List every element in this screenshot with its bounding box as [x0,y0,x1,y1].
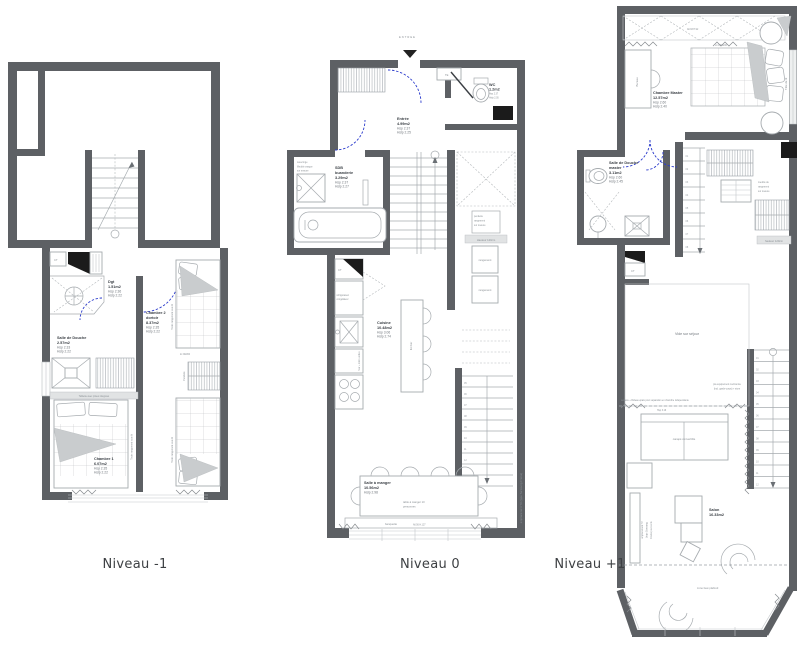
stair-step-number: 03 [756,380,759,383]
armchair-icon [669,604,687,620]
door-swing-arc [80,298,102,320]
room-hslp: Hslp 2.98 [364,491,378,495]
room-label: Chambre 1 [94,457,114,461]
room-area: 3.29m2 [335,176,348,180]
ct-label: CT [338,268,342,272]
coffee-table [675,496,702,523]
desk-chair-icon [651,70,660,88]
room-label2: dortoir [146,316,159,320]
room-area: 1.2m2 [489,88,500,92]
room-label: Salon [709,508,720,512]
ct-label: CT [631,269,635,273]
pillow-icon [765,49,784,67]
chair-icon [351,487,360,505]
door-swing-arc [645,152,663,170]
window-left-wall [42,362,50,396]
chair-icon [431,467,449,476]
stair-step-number: 08 [686,246,689,249]
floorplan-sheet: CT Dgt 1.51m2 Hsp 2.36 Hslp 2.22 Salle d… [0,0,800,647]
room-hslp: Hslp 2.22 [57,350,71,354]
stair-arrow-icon [129,162,135,168]
room-label: WC [489,83,496,87]
floorplan-niveau-plus1: All.93 H.92 Bureau Lit 160x200 Tête de l… [575,2,798,645]
towel-rack-icon [96,358,134,388]
door-swing-arc [388,70,421,103]
toilet-tank [474,78,488,84]
radiator-zigzag-icon [176,490,200,494]
island-label: Ilot bar [409,342,413,351]
radiator-zigzag-icon [625,42,657,46]
bed-size-note: 2x 90/200 [180,354,191,356]
chimney-block [781,142,797,158]
stair-step-number: 03 [686,181,689,184]
sofa-area: Hsp 3.16 canapé convertible [641,410,728,460]
technical-duct-icon [68,252,90,274]
bed-size-note: Lit 160x200 [715,44,728,47]
coffee-table [680,542,700,562]
room-hslp: Hslp 2.45 [609,180,623,184]
caption-niveau-plus1: Niveau +1 [545,557,635,572]
vanity-note: Meuble vasque [297,167,313,169]
floorplan-niveau-0: ENTREE Entrée 4.99m2 Hsp 2.37 Hslp 2.25 … [285,28,525,554]
tv-console [630,493,640,563]
storage-note: penderie [474,215,484,218]
window-sill-note: All.56 H.127 [413,524,426,527]
side-table-icon [760,22,782,44]
side-table-icon [761,112,783,134]
electrical-panel [437,68,461,80]
room-area: 16.33m2 [709,513,724,517]
stair-step-number: 12 [464,459,467,462]
floorplan-niveau-minus1: CT Dgt 1.51m2 Hsp 2.36 Hslp 2.22 Salle d… [8,62,236,514]
storage-note3: sur mesure [474,224,486,227]
stair-arrow-icon [771,482,776,488]
cabinet [627,463,652,488]
stair-step-number: 10 [756,461,759,464]
dressing-area: meuble de rangement sur mesure hauteur 1… [707,150,791,244]
fridge-label: réfrigérateur [337,294,350,297]
room-hslp: Hslp 2.74 [377,335,391,339]
stair-step-number: 02 [686,168,689,171]
storage-note3: sur mesure [758,190,770,193]
room-area: 12.57m2 [653,96,668,100]
ct-closet-plus1: CT [625,251,645,276]
room-hslp: Hslp 2.22 [108,294,122,298]
fridge-label2: congélateur [337,298,349,301]
staircase-minus1 [92,154,138,238]
coat-closet-icon [338,68,385,92]
room-label2: buanderie [335,171,353,175]
salle-de-douche: Salle de Douche 2.57m2 Hsp 2.33 Hslp 2.2… [50,276,138,399]
sofa-label: canapé convertible [673,437,696,441]
height-note: hauteur 120cm [765,239,784,243]
kitchen: TE CT réfrigérateur congélateur four + m… [335,259,431,409]
room-label: Salle de Douche [609,161,638,165]
room-area: 1.51m2 [108,285,121,289]
room-hslp: Hslp 2.05 [489,98,499,100]
room-area: 3.11m2 [609,171,622,175]
mezzanine-note: pré-équipement mezzanine [713,383,742,386]
walls-upper-block [8,62,220,248]
stair-step-number: 10 [464,437,467,440]
stair-start-circle [769,348,776,355]
caption-niveau-0: Niveau 0 [385,557,475,572]
chair-icon [478,487,487,505]
room-label: Salle de Douche [57,336,86,340]
room-area: 2.57m2 [57,341,70,345]
room-hsp: Hsp 2.37 [489,94,499,96]
stair-step-number: 07 [686,233,689,236]
storage-note: Tiroirs rangement sous lit [131,434,134,460]
bay-window [620,588,791,636]
tv-location-note: emplacement TV (type Samsung Frame) [519,473,523,524]
stair-step-number: 06 [464,393,467,396]
staircase-plus1: 01 02 03 04 05 06 07 08 09 10 11 12 [754,348,789,488]
sliding-door-line [451,72,473,98]
room-area: 4.99m2 [397,122,410,126]
electrical-panel-label: TE [445,73,449,77]
stair-step-number: 08 [756,438,759,441]
stair-arrow-icon [485,478,490,484]
headboard-label: Tête de lit [784,77,788,90]
stair-step-number: 07 [756,426,759,429]
room-hslp: Hslp 2.22 [94,471,108,475]
stair-step-number: 12 [756,484,759,487]
stair-step-number: 11 [464,448,467,451]
stair-step-number: 02 [756,369,759,372]
sdb-buanderie: Lave linge Meuble vasque sur mesure SDB … [294,120,386,242]
stair-step-number: 05 [686,207,689,210]
room-hslp: Hslp 2.40 [653,105,667,109]
room-area: 6.07m2 [94,462,107,466]
storage-note2: rangement [474,220,485,223]
oven-label: four + micro-ondes [358,351,361,371]
shelf-note: Tablette avec prises intégrées [79,395,110,398]
mezzanine-note2: (incl. garde-corps) + store [714,388,741,391]
stair-step-number: 01 [686,155,689,158]
dining-area: Salle à manger 10.56m2 Hslp 2.98 table à… [345,467,497,528]
height-note: Hauteur 120cm [477,238,496,242]
storage-note: meuble de [758,182,769,184]
stair-step-number: 09 [756,449,759,452]
room-label: Cuisine [377,321,391,325]
room-area: 10.56m2 [364,486,379,490]
bench [345,518,497,528]
stair-step-number: 05 [756,403,759,406]
tv-note2: (type Samsung [646,522,649,538]
stair-step-number: 11 [756,472,759,475]
desk-label: Bureau [635,77,639,86]
fridge-icon [335,281,363,315]
storage-note: Tiroirs rangement sous lit [171,437,174,463]
stair-step-number: 01 [756,357,759,360]
armchair-icon [659,602,693,633]
corridor-storage: penderie rangement sur mesure Hauteur 12… [457,152,515,303]
stair-step-number: 06 [756,415,759,418]
bar-stool-icon [423,364,431,380]
room-area: 8.37m2 [146,321,159,325]
tv-note3: Frame) sur socle [650,521,653,539]
entrance-arrow-icon [403,50,417,58]
ct-label: CT [54,258,58,262]
stair-step-number: 08 [464,415,467,418]
false-ceiling-label: zone faux plafond [697,586,719,590]
ct-closet: CT [50,252,102,274]
bar-stool-icon [423,308,431,324]
coffee-table [681,523,702,542]
bar-stool-icon [423,336,431,352]
door-swing-arc [335,120,365,150]
table-note: table à manger 10 [403,500,425,504]
storage-label: rangement [479,288,492,292]
duct-block [493,106,513,120]
room-hslp: Hslp 2.22 [146,330,160,334]
stair-step-number: 04 [756,392,759,395]
tv-note: emplacement TV [641,521,644,539]
stair-step-number: 06 [686,220,689,223]
stair-step-number: 05 [464,382,467,385]
entrance-label: ENTREE [399,35,416,39]
salon: Salon 16.33m2 emplacement TV (type Samsu… [619,463,789,633]
room-hslp: Hslp 2.25 [397,131,411,135]
stair-step-number: 09 [464,426,467,429]
entrance-marker: ENTREE [399,35,417,58]
stair-start-circle [111,230,119,238]
cooktop-icon [335,375,363,409]
room-label: Chambre 2 [146,311,166,315]
caption-niveau-minus1: Niveau -1 [90,557,180,572]
bench-label: banquette [385,522,397,526]
staircase-up: 05 06 07 08 09 10 11 12 [462,330,513,486]
staircase-arrival: 01 02 03 04 05 06 07 08 [683,148,705,254]
salle-de-douche-master: Salle de Douche master 3.11m2 Hsp 2.60 H… [585,152,663,238]
sofa [641,414,728,460]
table-note2: personnes [403,505,416,509]
room-hslp: Hslp 2.27 [335,185,349,189]
storage-label: rangement [479,258,492,262]
staircase-central [390,151,447,254]
room-label2: master [609,166,622,170]
room-label: Salle à manger [364,481,391,485]
wall [765,588,791,634]
stair-step-number: 04 [686,194,689,197]
armchair-icon [730,553,748,569]
window-band-bottom [339,524,491,541]
room-area: 10.48m2 [377,326,392,330]
washer-label: Lave linge [297,162,308,164]
towel-radiator-icon [363,180,368,205]
radiator-zigzag-icon [72,490,96,494]
room-label: SDB [335,166,343,170]
storage-note: Tiroirs rangement sous lit [171,304,174,330]
fridge-door-swing [363,272,385,300]
separation-note: verrière + Rideau épais pour séparation … [621,399,689,402]
chambre-2-dortoir: Chambre 2 dortoir 8.37m2 Hsp 2.35 Hslp 2… [146,260,220,486]
ceiling-height-note: Hsp 3.16 [657,410,667,412]
window-sill-note: All.93 H.92 [687,28,699,31]
stair-arrow-icon [698,248,703,254]
entree-hall: Entrée 4.99m2 Hsp 2.37 Hslp 2.25 [338,68,421,135]
vanity-note2: sur mesure [297,170,309,173]
storage-note2: rangement [758,186,769,189]
wardrobe-label: Penderie [183,371,186,381]
technical-duct-icon [625,251,645,263]
armchair-icon [721,544,755,574]
master-bedroom: All.93 H.92 Bureau Lit 160x200 Tête de l… [623,16,797,167]
room-label: Chambre Master [653,91,683,95]
void-label: Vide sur séjour [675,332,700,336]
room-label: Entrée [397,117,409,121]
chair-icon [371,467,389,476]
chambre-1: Chambre 1 6.07m2 Hsp 2.35 Hslp 2.22 Tiro… [54,400,134,488]
stair-step-number: 07 [464,404,467,407]
room-label: Dgt [108,280,115,284]
pillow-icon [766,67,785,84]
chair-icon [401,467,419,476]
